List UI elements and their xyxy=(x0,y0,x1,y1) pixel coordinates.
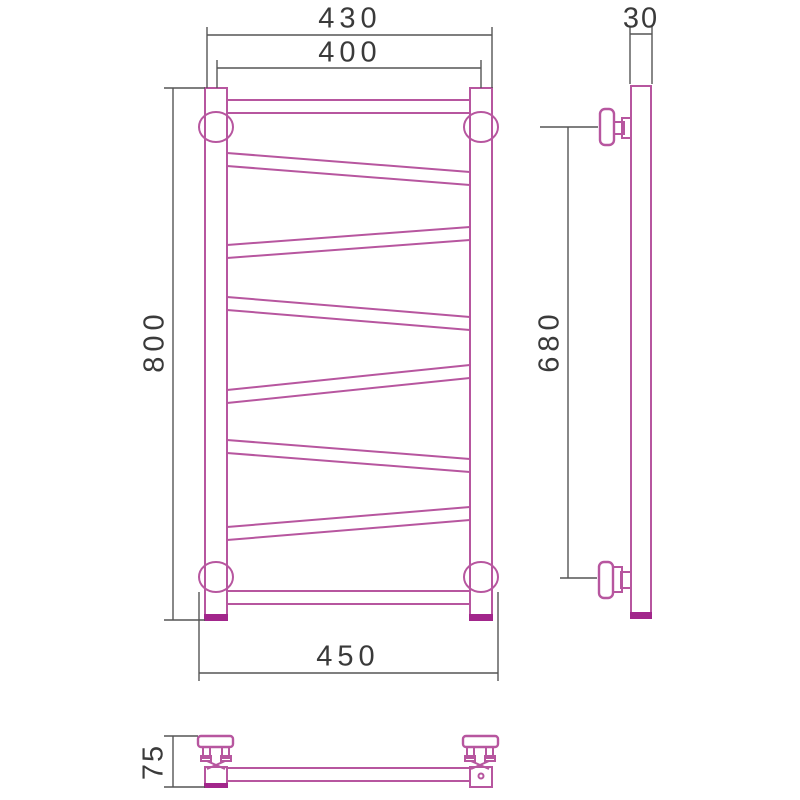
technical-drawing-canvas: 430 400 800 450 30 680 75 xyxy=(0,0,800,800)
side-view xyxy=(599,86,652,619)
dim-label-wall-depth: 75 xyxy=(138,744,171,780)
bottom-left-bracket xyxy=(198,736,233,769)
dim-label-bracket-span: 450 xyxy=(316,641,379,674)
dim-label-tube-width: 30 xyxy=(623,3,659,36)
bottom-view xyxy=(198,736,498,788)
zigzag-rungs xyxy=(227,153,470,540)
front-view xyxy=(199,88,498,621)
side-bottom-bracket xyxy=(599,562,631,598)
bottom-right-bracket xyxy=(463,736,498,769)
dim-label-outer-width: 430 xyxy=(318,3,381,36)
side-top-bracket xyxy=(600,109,631,145)
dim-label-center-width: 400 xyxy=(318,37,381,70)
dim-label-height: 800 xyxy=(139,309,172,372)
dim-label-bracket-spacing: 680 xyxy=(534,309,567,372)
towel-rail-drawing xyxy=(0,0,800,800)
screw-hole xyxy=(479,774,484,779)
